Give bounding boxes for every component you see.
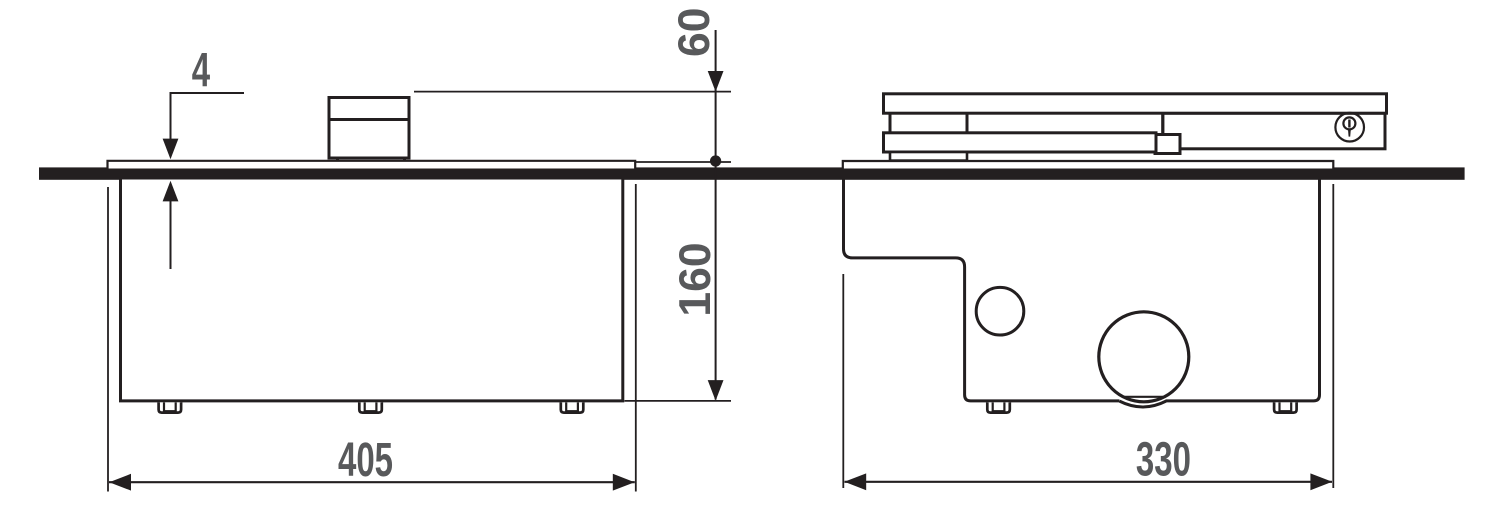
svg-text:4: 4 bbox=[192, 42, 210, 97]
svg-text:330: 330 bbox=[1136, 431, 1191, 486]
svg-text:405: 405 bbox=[338, 431, 393, 486]
svg-text:160: 160 bbox=[671, 242, 720, 316]
svg-text:60: 60 bbox=[670, 7, 719, 57]
